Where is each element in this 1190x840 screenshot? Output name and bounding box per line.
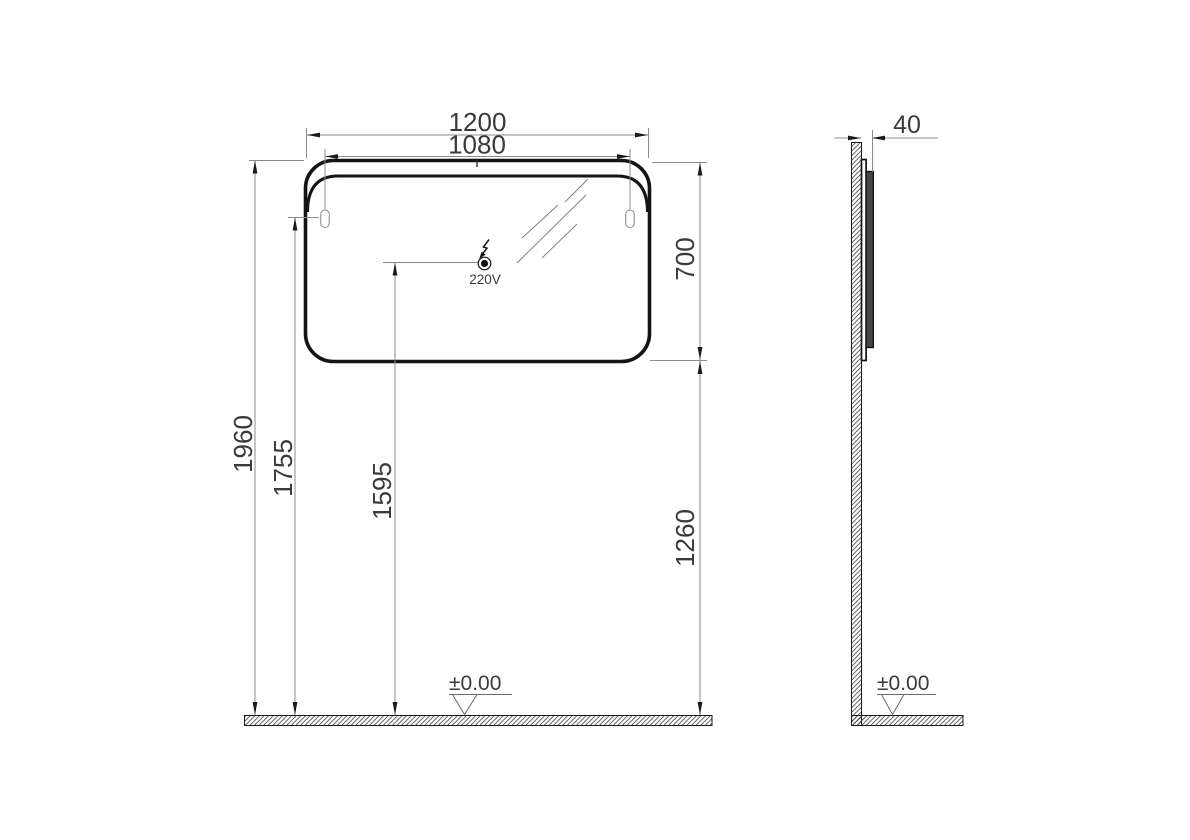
dim-bottom-height-1260: 1260	[670, 361, 702, 715]
dim-total-height-1960: 1960	[228, 161, 304, 716]
dim-hanger-height-label: 1755	[268, 439, 298, 497]
wall-section	[852, 143, 862, 726]
dim-hanger-height-1755: 1755	[268, 218, 319, 716]
dim-socket-height-1595: 1595	[367, 263, 397, 716]
glass-reflection-lines	[517, 179, 588, 263]
floor-front	[245, 716, 713, 726]
dim-hanger-spacing-label: 1080	[448, 130, 506, 160]
mirror-side-profile	[866, 172, 873, 348]
front-view: 220V 1200 1080 700	[228, 107, 712, 726]
dim-bottom-height-label: 1260	[670, 509, 700, 567]
dim-depth-40: 40	[834, 111, 938, 172]
mirror-top-frame-line	[308, 176, 648, 212]
power-socket: 220V	[383, 240, 501, 288]
mirror-outline	[306, 161, 650, 362]
dim-total-height-label: 1960	[228, 415, 258, 473]
floor-level-label-front: ±0.00	[449, 672, 501, 695]
socket-voltage-label: 220V	[469, 272, 501, 287]
socket-dot	[481, 260, 488, 267]
floor-level-label-side: ±0.00	[877, 672, 929, 695]
datum-level-icon: ±0.00	[877, 672, 936, 715]
dim-socket-height-label: 1595	[367, 462, 397, 520]
floor-side	[852, 716, 964, 726]
dim-depth-label: 40	[893, 111, 921, 139]
hanger-slot-left	[321, 210, 330, 228]
lightning-bolt-icon	[479, 240, 489, 259]
dim-mirror-height-700: 700	[650, 163, 707, 716]
side-view: 40 ±0.00	[834, 111, 963, 726]
technical-drawing-page: 220V 1200 1080 700	[0, 0, 1190, 840]
hanger-slot-right	[626, 210, 635, 228]
mirror-installation-drawing: 220V 1200 1080 700	[0, 0, 1190, 840]
datum-level-icon: ±0.00	[449, 672, 512, 715]
dim-mirror-height-label: 700	[670, 237, 700, 280]
